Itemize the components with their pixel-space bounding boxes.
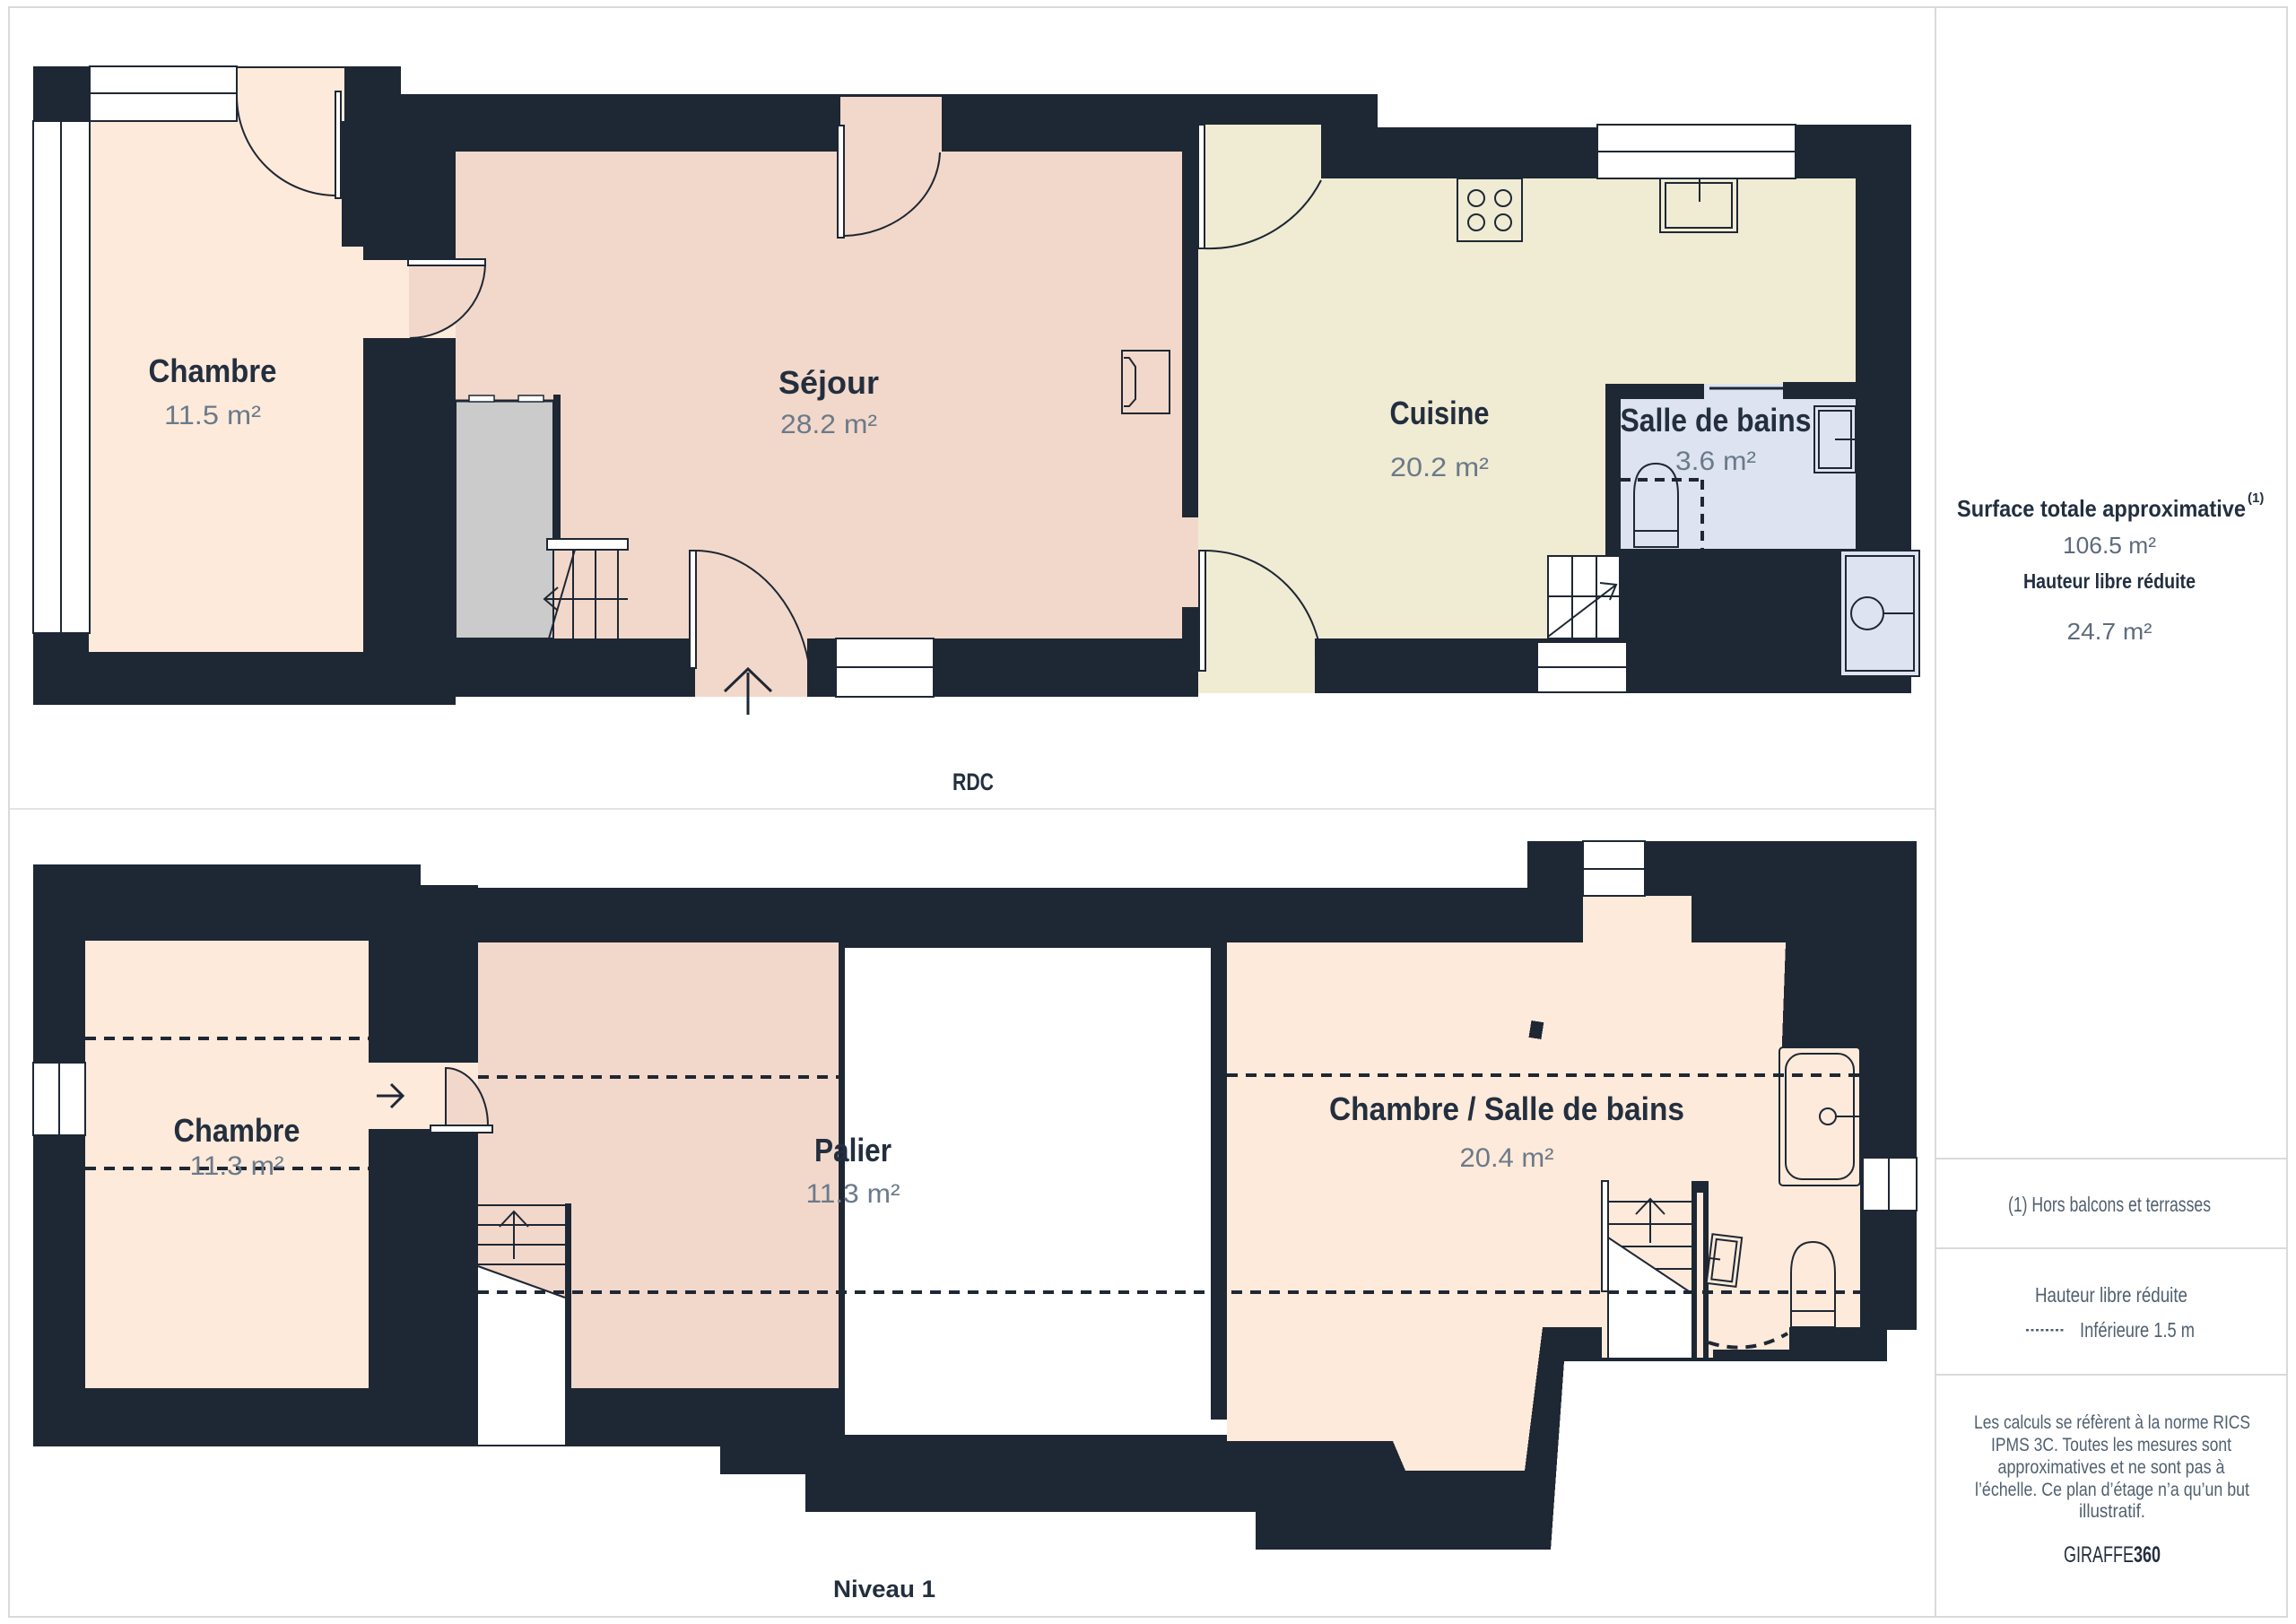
svg-text:Cuisine: Cuisine bbox=[1390, 395, 1490, 431]
svg-text:Salle de bains: Salle de bains bbox=[1621, 402, 1812, 439]
svg-text:(1): (1) bbox=[2248, 491, 2264, 506]
svg-text:Inférieure 1.5 m: Inférieure 1.5 m bbox=[2080, 1318, 2195, 1342]
svg-text:IPMS 3C. Toutes les mesures so: IPMS 3C. Toutes les mesures sont bbox=[1991, 1434, 2231, 1455]
svg-text:Séjour: Séjour bbox=[778, 364, 879, 401]
svg-text:Palier: Palier bbox=[814, 1132, 891, 1168]
svg-text:Chambre / Salle de bains: Chambre / Salle de bains bbox=[1329, 1090, 1684, 1127]
svg-text:GIRAFFE360: GIRAFFE360 bbox=[2064, 1542, 2161, 1568]
svg-text:l’échelle. Ce plan d’étage n’a: l’échelle. Ce plan d’étage n’a qu’un but bbox=[1975, 1479, 2249, 1500]
svg-text:Chambre: Chambre bbox=[149, 352, 277, 389]
svg-text:24.7 m²: 24.7 m² bbox=[2067, 618, 2152, 645]
svg-text:11.3 m²: 11.3 m² bbox=[190, 1151, 284, 1181]
svg-text:20.4 m²: 20.4 m² bbox=[1460, 1143, 1554, 1173]
svg-text:Les calculs se réfèrent à la n: Les calculs se réfèrent à la norme RICS bbox=[1974, 1411, 2250, 1433]
svg-text:11.3 m²: 11.3 m² bbox=[806, 1179, 900, 1209]
svg-text:3.6 m²: 3.6 m² bbox=[1675, 447, 1756, 476]
svg-text:11.5 m²: 11.5 m² bbox=[164, 401, 261, 430]
svg-text:106.5 m²: 106.5 m² bbox=[2063, 532, 2156, 559]
svg-text:28.2 m²: 28.2 m² bbox=[780, 410, 877, 439]
svg-text:Surface totale approximative: Surface totale approximative bbox=[1957, 495, 2246, 522]
svg-text:(1) Hors balcons et terrasses: (1) Hors balcons et terrasses bbox=[2008, 1193, 2211, 1216]
svg-text:approximatives et ne sont pas: approximatives et ne sont pas à bbox=[1998, 1456, 2225, 1478]
svg-text:Hauteur libre réduite: Hauteur libre réduite bbox=[2023, 569, 2196, 593]
svg-text:Chambre: Chambre bbox=[174, 1112, 300, 1149]
svg-text:20.2 m²: 20.2 m² bbox=[1390, 453, 1489, 482]
svg-text:illustratif.: illustratif. bbox=[2079, 1500, 2145, 1522]
svg-text:Niveau 1: Niveau 1 bbox=[833, 1576, 935, 1602]
svg-text:RDC: RDC bbox=[952, 769, 994, 795]
svg-text:Hauteur libre réduite: Hauteur libre réduite bbox=[2035, 1283, 2187, 1307]
